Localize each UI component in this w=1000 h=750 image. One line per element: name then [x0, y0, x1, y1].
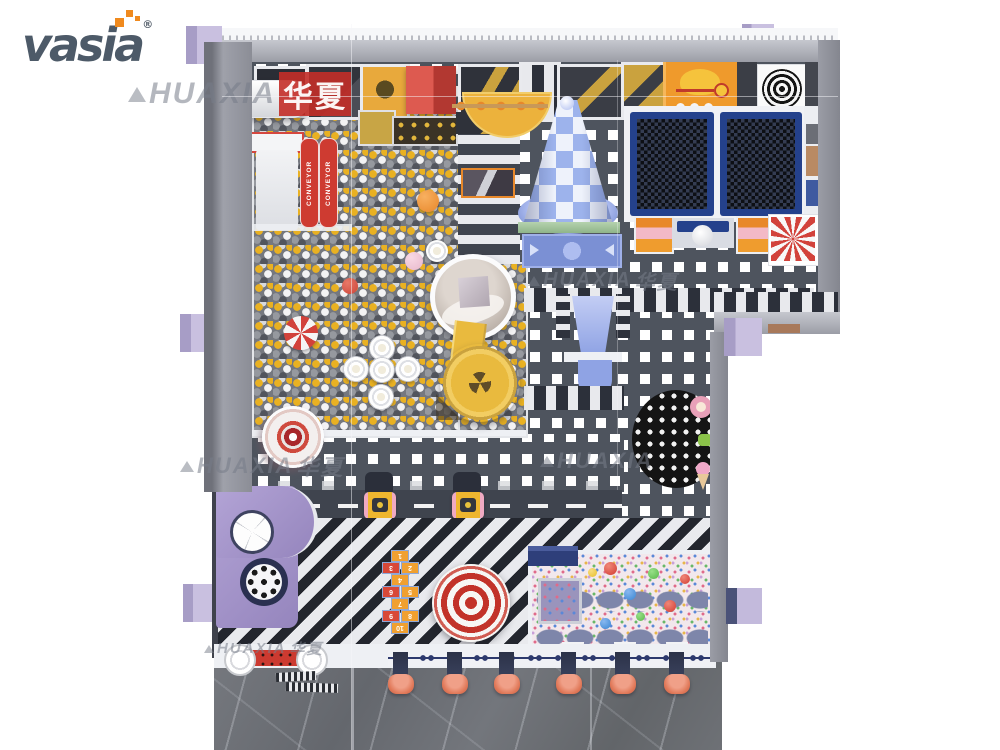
mushroom-seat [368, 384, 394, 410]
car-wheel-icon [465, 502, 471, 508]
page: vasia® [0, 0, 1000, 750]
guide-line [617, 60, 618, 490]
mushroom-seat [369, 357, 395, 383]
balloon [588, 568, 597, 577]
balloon [636, 612, 645, 621]
hopscotch-tile: 1 [391, 550, 409, 562]
right-wall [818, 40, 840, 332]
balloon [648, 568, 659, 579]
hopscotch-row: 7 [380, 598, 420, 610]
pinwheel-box [768, 214, 820, 266]
trampoline-mesh [727, 119, 795, 209]
hopscotch-row: 65 [380, 586, 420, 598]
balloon [604, 562, 617, 575]
hopscotch-tile: 10 [391, 622, 409, 634]
pillar [724, 318, 762, 356]
watermark-latin: HUAXIA [543, 269, 632, 292]
donut-slide [440, 344, 520, 422]
landing-mat [461, 168, 515, 198]
donut-fan [467, 370, 493, 396]
hopscotch-court: 1 32 4 65 7 98 10 [380, 550, 420, 634]
mountain-logo-icon [528, 276, 540, 286]
guide-line [351, 24, 352, 750]
car-shelter [365, 472, 393, 492]
watermark: HUAXIA 华夏 [528, 266, 679, 295]
guide-line [222, 96, 838, 97]
stool [664, 674, 690, 694]
mountain-logo-icon [180, 461, 194, 472]
conveyor-slide: CONVEYOR [300, 138, 319, 228]
car-wheel-icon [377, 502, 383, 508]
wing-panel [672, 218, 734, 248]
arrow-icon [605, 244, 614, 256]
striped-panel [634, 216, 674, 254]
screen-panel [538, 578, 582, 624]
dial-face-icon [246, 564, 282, 600]
balloon [664, 600, 676, 612]
playground-render: CONVEYOR CONVEYOR [0, 0, 1000, 750]
hopscotch-tile: 4 [391, 574, 409, 586]
watermark: HUAXIA 华夏 [128, 72, 351, 116]
striped-panel [736, 216, 770, 254]
icecream-cone [697, 474, 709, 490]
watermark: HUAXIA [540, 448, 653, 474]
ring-target [432, 564, 510, 642]
car-shelter [453, 472, 481, 492]
candy-zone [528, 550, 716, 658]
hopscotch-tile: 9 [382, 610, 400, 622]
hopscotch-tile: 6 [382, 586, 400, 598]
fence-rail [388, 650, 714, 666]
watermark-cn: 华夏 [290, 638, 324, 659]
trampoline [630, 112, 714, 216]
watermark-cn: 华夏 [296, 450, 344, 482]
spinner-bar [452, 100, 548, 112]
spinning-top [284, 316, 318, 350]
balloon [680, 574, 690, 584]
hopscotch-tile: 3 [382, 562, 400, 574]
panel-art-line [676, 89, 714, 92]
conveyor-slide: CONVEYOR [319, 138, 338, 228]
hopscotch-tile: 7 [391, 598, 409, 610]
arrow-icon [530, 244, 539, 256]
mountain-logo-icon [204, 645, 214, 653]
donut-decor-icon [690, 396, 712, 418]
conveyor-label: CONVEYOR [325, 160, 332, 205]
bench [768, 324, 800, 333]
wheel-icon [230, 510, 274, 554]
balloon [624, 588, 636, 600]
mountain-logo-icon [540, 456, 554, 467]
watermark-latin: HUAXIA [149, 77, 276, 111]
trampoline [720, 112, 802, 216]
climb-block-dots [392, 116, 458, 146]
hopscotch-tile: 5 [401, 586, 419, 598]
balloon [600, 618, 611, 629]
pinwheel-icon [771, 217, 815, 261]
cone-top-knob [560, 96, 574, 110]
crosswalk [524, 386, 624, 410]
step-crosswalk [714, 292, 838, 314]
toy-car [364, 492, 396, 519]
mushroom-seat [343, 356, 369, 382]
cube-seat [458, 276, 490, 308]
climb-block [358, 110, 396, 146]
watermark-latin: HUAXIA [197, 453, 293, 479]
white-mat [256, 150, 298, 230]
watermark-cn: 华夏 [635, 266, 679, 295]
orange-ball [417, 190, 439, 212]
red-ball [342, 278, 358, 294]
hopscotch-row: 32 [380, 562, 420, 574]
stool [556, 674, 582, 694]
grout-line [352, 658, 354, 750]
stairs [458, 132, 520, 264]
awning [528, 546, 578, 566]
slide-rail [556, 294, 570, 338]
blue-trampoline-pad [522, 234, 622, 268]
watermark-cn: 华夏 [279, 72, 351, 116]
mushroom-seat [426, 240, 448, 262]
grout-line [590, 658, 592, 750]
stool [494, 674, 520, 694]
stool [388, 674, 414, 694]
red-cube-block [406, 66, 456, 114]
toy-car [452, 492, 484, 519]
hopscotch-row: 98 [380, 610, 420, 622]
pillar [726, 588, 762, 624]
hopscotch-tile: 8 [401, 610, 419, 622]
mushroom-seat [395, 356, 421, 382]
conveyor-label: CONVEYOR [306, 160, 313, 205]
hopscotch-row: 1 [380, 550, 420, 562]
donut-opening [436, 394, 462, 420]
watermark-latin: HUAXIA [217, 640, 287, 657]
trampoline-mesh [637, 119, 707, 209]
slide-rail [616, 294, 630, 338]
hopscotch-row: 10 [380, 622, 420, 634]
purple-play-structure [216, 486, 314, 628]
stool [610, 674, 636, 694]
hopscotch-tile: 2 [401, 562, 419, 574]
pink-ball [405, 252, 423, 270]
mountain-logo-icon [128, 87, 146, 102]
dartboard-icon [762, 69, 802, 109]
watermark: HUAXIA 华夏 [180, 450, 344, 482]
white-ball [692, 225, 713, 246]
watermark-latin: HUAXIA [557, 448, 653, 474]
watermark: HUAXIA 华夏 [204, 638, 324, 659]
green-platform [518, 222, 620, 233]
top-wall [222, 40, 840, 62]
stool [442, 674, 468, 694]
hopscotch-row: 4 [380, 574, 420, 586]
machine-gear-strip [286, 682, 338, 693]
